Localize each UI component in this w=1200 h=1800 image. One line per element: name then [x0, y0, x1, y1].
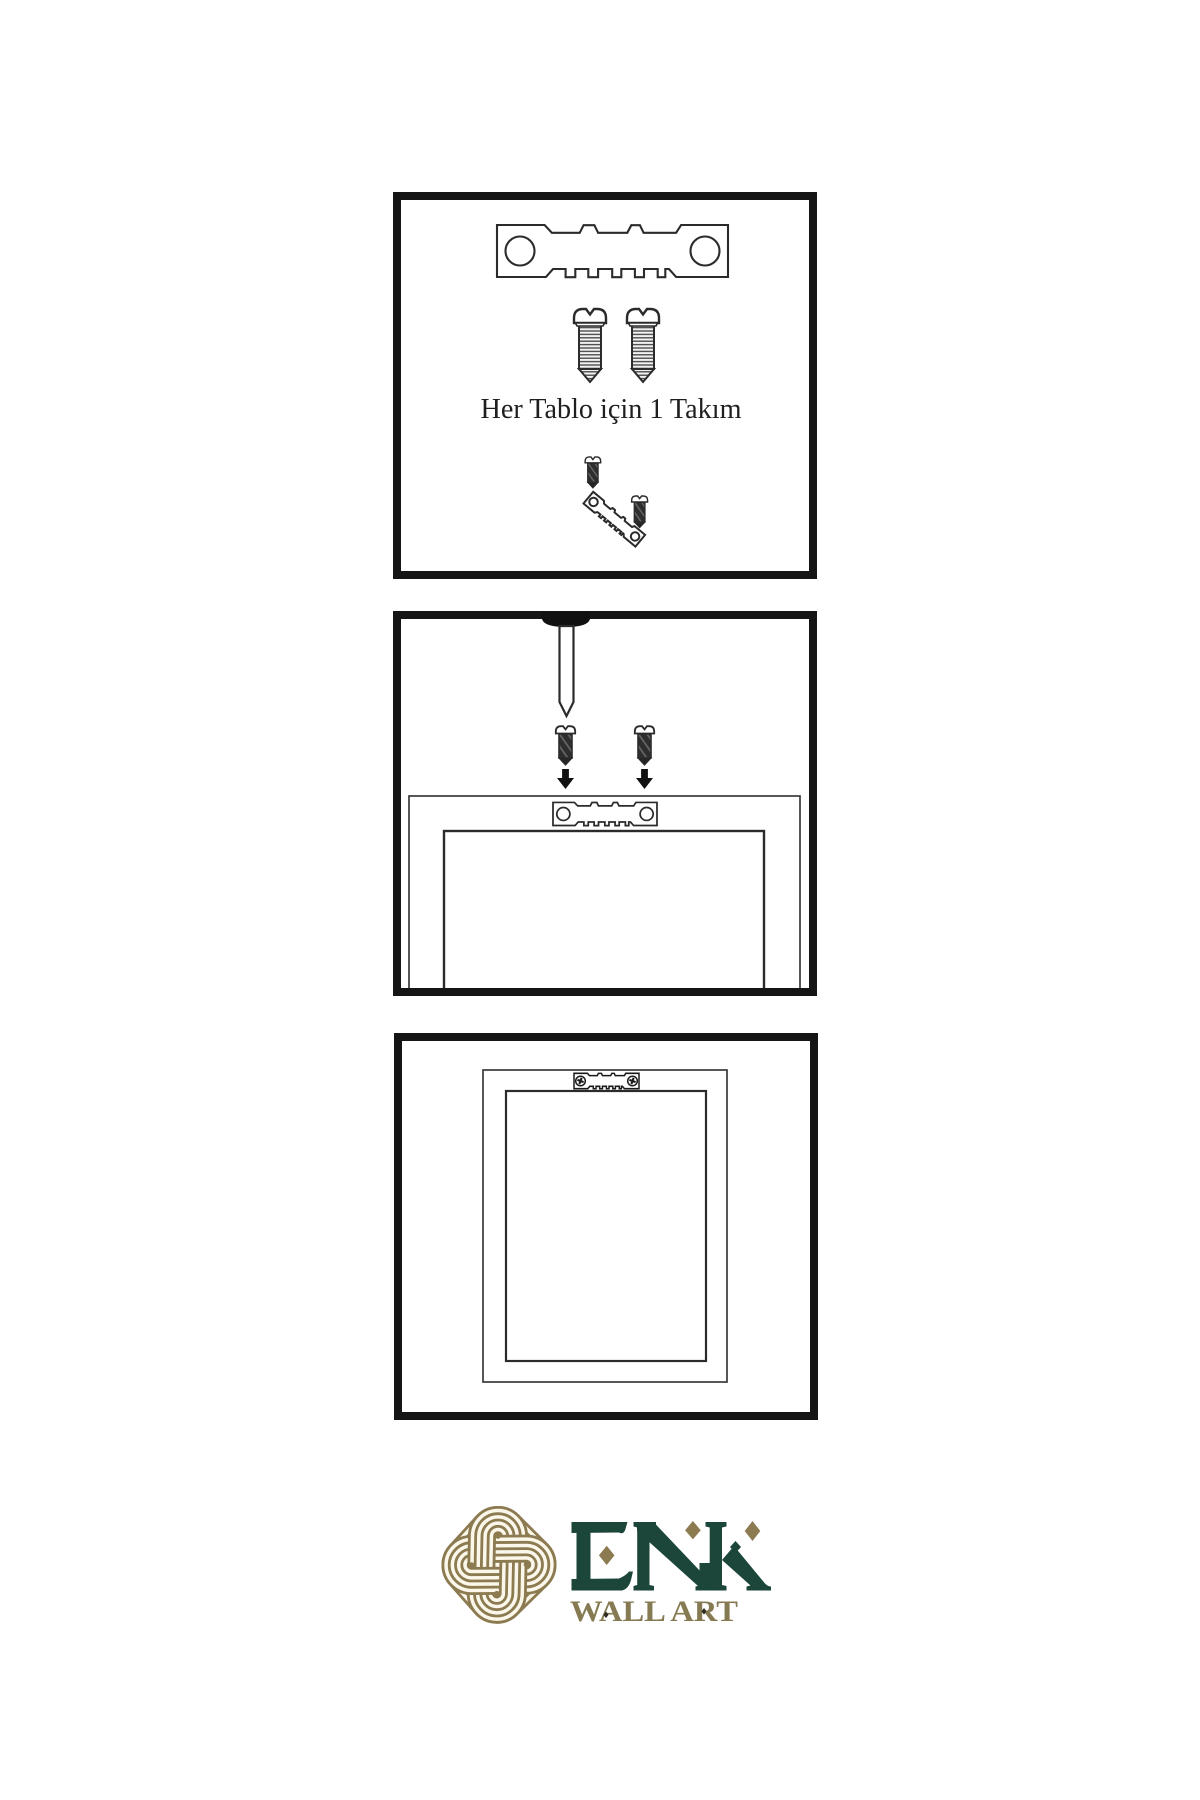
svg-text:Her Tablo için 1 Takım: Her Tablo için 1 Takım [481, 393, 742, 425]
svg-text:WALL ART: WALL ART [570, 1595, 738, 1628]
